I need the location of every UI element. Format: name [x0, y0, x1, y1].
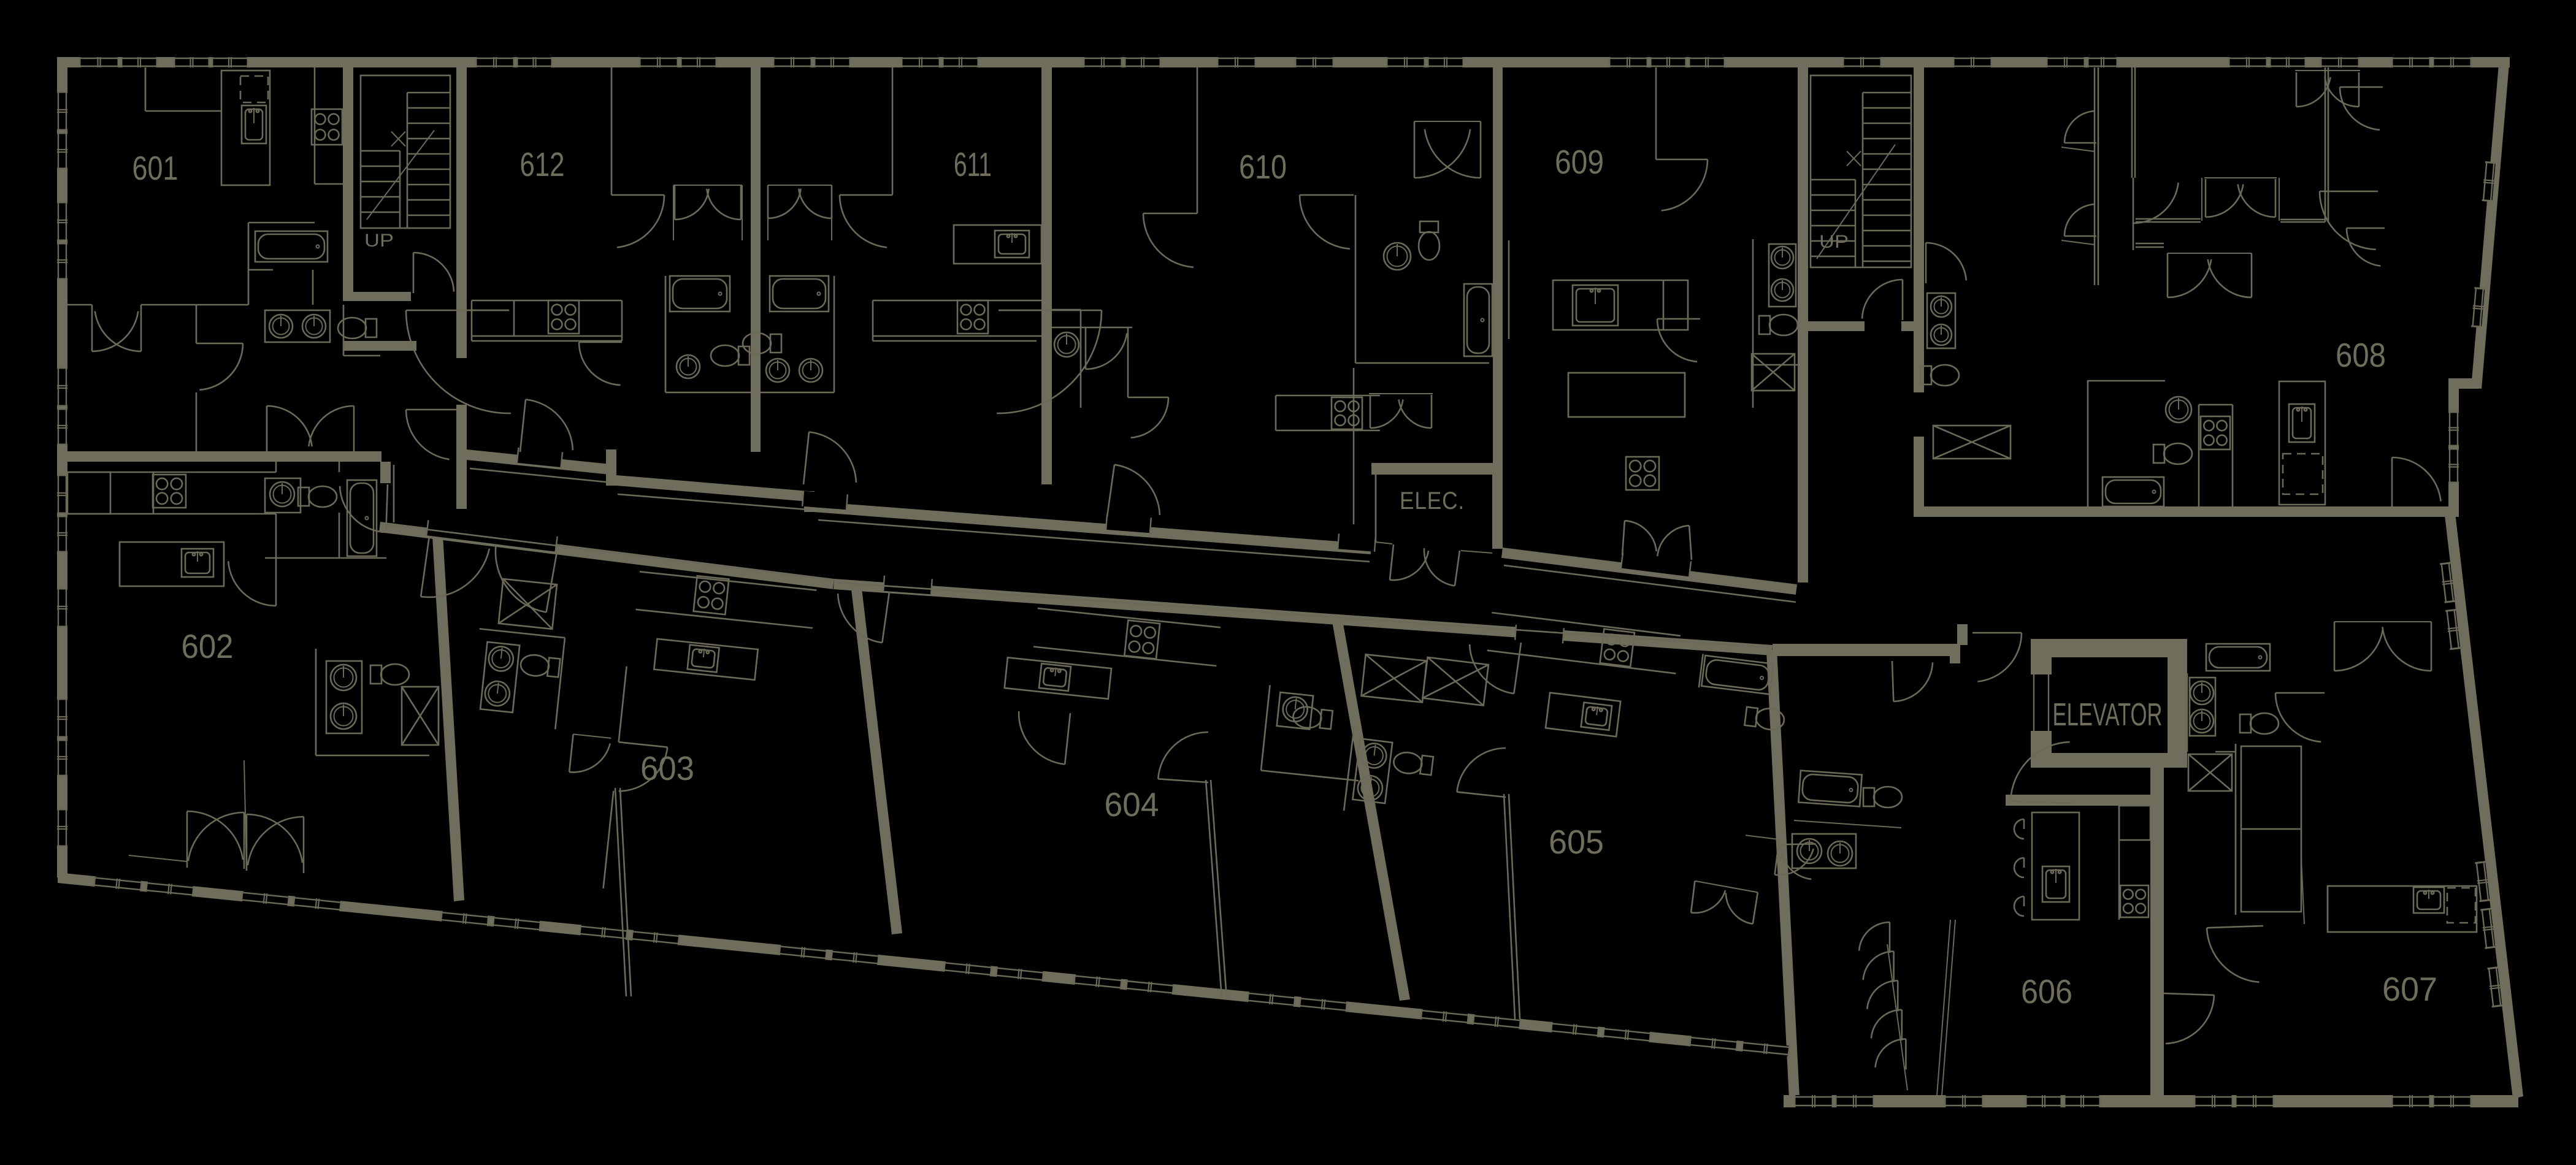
svg-text:611: 611	[954, 145, 992, 183]
svg-text:601: 601	[132, 149, 178, 187]
svg-text:605: 605	[1549, 823, 1604, 861]
svg-text:608: 608	[2336, 336, 2386, 374]
svg-text:606: 606	[2021, 972, 2072, 1010]
svg-text:UP: UP	[364, 231, 394, 251]
svg-text:UP: UP	[1819, 232, 1849, 252]
svg-text:ELEC.: ELEC.	[1400, 487, 1465, 514]
svg-text:603: 603	[640, 749, 694, 787]
svg-text:602: 602	[182, 627, 234, 665]
svg-text:612: 612	[520, 145, 565, 183]
svg-text:ELEVATOR: ELEVATOR	[2053, 697, 2163, 733]
svg-text:610: 610	[1239, 148, 1287, 186]
svg-text:607: 607	[2382, 970, 2437, 1008]
svg-text:604: 604	[1105, 785, 1159, 823]
svg-text:609: 609	[1555, 143, 1604, 181]
